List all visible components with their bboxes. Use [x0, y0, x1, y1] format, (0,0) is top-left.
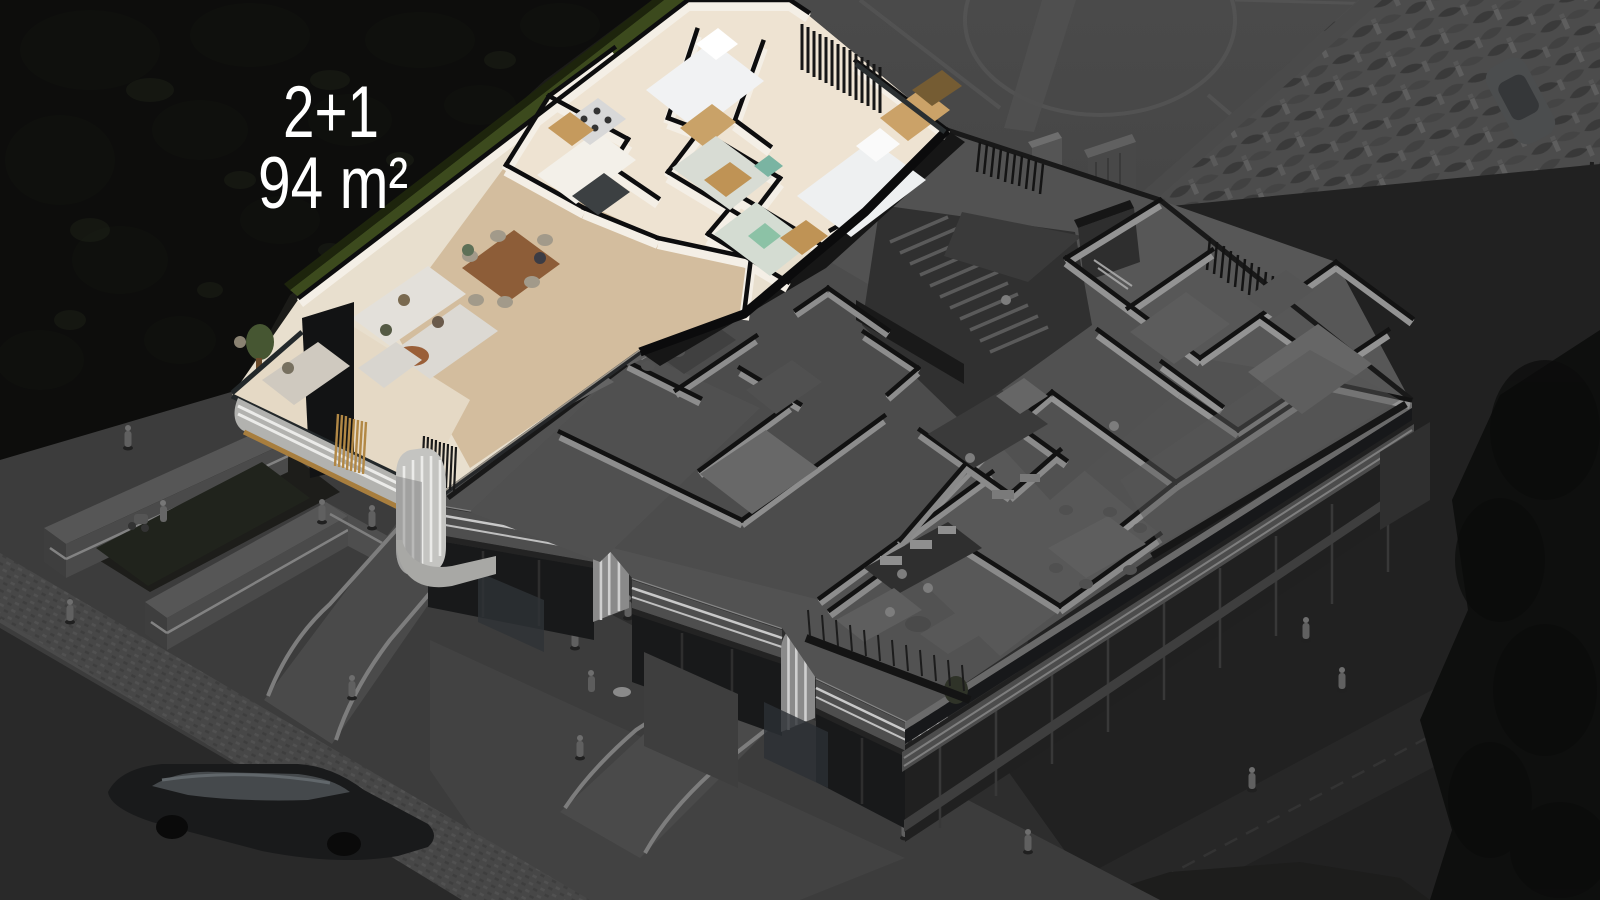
svg-text:2+1: 2+1	[283, 72, 379, 153]
svg-text:94 m²: 94 m²	[258, 143, 408, 224]
